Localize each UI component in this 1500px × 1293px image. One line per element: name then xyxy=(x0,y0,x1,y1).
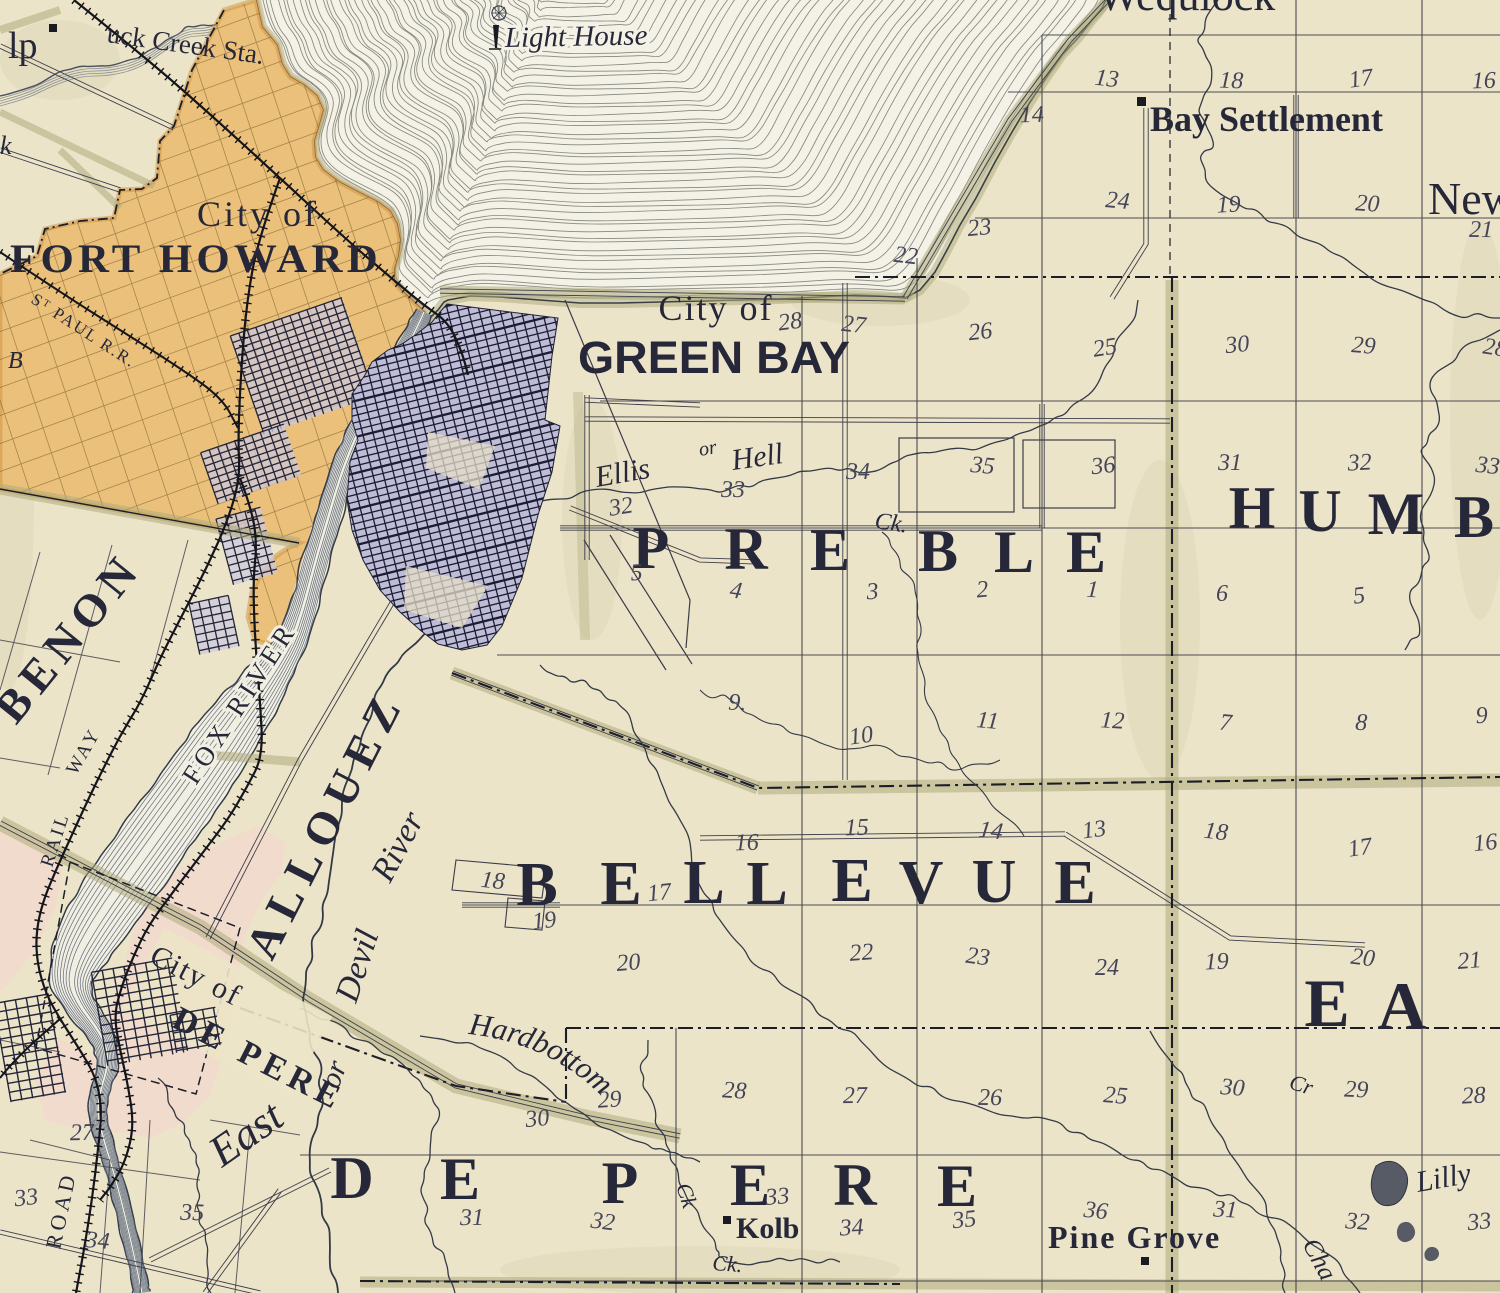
svg-text:36: 36 xyxy=(1081,1197,1109,1226)
svg-text:21: 21 xyxy=(1469,217,1493,243)
svg-text:Light House: Light House xyxy=(504,20,648,55)
svg-text:lp: lp xyxy=(8,25,38,67)
svg-text:E: E xyxy=(1066,519,1106,585)
svg-text:Ck.: Ck. xyxy=(712,1250,744,1277)
svg-text:29: 29 xyxy=(1351,332,1377,360)
svg-text:27: 27 xyxy=(843,1083,868,1109)
svg-text:1: 1 xyxy=(1086,577,1100,604)
svg-text:3: 3 xyxy=(865,579,880,606)
svg-text:17: 17 xyxy=(646,879,674,908)
svg-text:Pine Grove: Pine Grove xyxy=(1048,1219,1221,1255)
svg-text:29: 29 xyxy=(1344,1076,1369,1103)
svg-text:36: 36 xyxy=(1089,452,1116,480)
svg-text:18: 18 xyxy=(1219,68,1244,95)
svg-text:City of: City of xyxy=(197,194,319,234)
svg-text:H: H xyxy=(1229,475,1276,541)
svg-text:B: B xyxy=(918,518,958,584)
svg-text:27: 27 xyxy=(840,311,867,339)
svg-text:19: 19 xyxy=(1204,949,1229,976)
svg-text:24: 24 xyxy=(1105,187,1131,215)
svg-text:26: 26 xyxy=(967,318,994,346)
svg-text:14: 14 xyxy=(977,817,1004,846)
svg-text:34: 34 xyxy=(838,1214,864,1241)
svg-text:22: 22 xyxy=(849,939,875,967)
svg-text:9: 9 xyxy=(1475,703,1488,730)
svg-text:33: 33 xyxy=(1465,1208,1493,1236)
svg-text:k: k xyxy=(0,131,12,160)
svg-text:23: 23 xyxy=(964,943,991,972)
svg-text:25: 25 xyxy=(1103,1082,1129,1110)
svg-text:L: L xyxy=(683,849,724,917)
svg-text:30: 30 xyxy=(1219,1074,1246,1102)
svg-text:33: 33 xyxy=(720,477,745,503)
svg-text:17: 17 xyxy=(1347,64,1376,93)
svg-text:20: 20 xyxy=(615,949,641,977)
svg-text:21: 21 xyxy=(1456,947,1482,975)
svg-text:29: 29 xyxy=(597,1086,623,1113)
svg-text:35: 35 xyxy=(969,452,996,480)
svg-text:33: 33 xyxy=(12,1184,40,1213)
svg-text:33: 33 xyxy=(1473,452,1500,480)
svg-text:5: 5 xyxy=(630,560,644,587)
svg-text:32: 32 xyxy=(1346,449,1372,476)
svg-text:17: 17 xyxy=(1346,833,1375,862)
svg-text:6: 6 xyxy=(1216,581,1228,607)
svg-text:14: 14 xyxy=(1020,102,1044,128)
svg-text:20: 20 xyxy=(1355,190,1381,217)
svg-text:E: E xyxy=(831,847,872,915)
svg-text:U: U xyxy=(1298,478,1341,544)
svg-text:35: 35 xyxy=(950,1206,978,1235)
svg-text:GREEN BAY: GREEN BAY xyxy=(578,332,850,383)
svg-text:24: 24 xyxy=(1095,955,1119,981)
svg-text:13: 13 xyxy=(1081,816,1108,845)
svg-text:22: 22 xyxy=(892,242,919,271)
svg-text:B: B xyxy=(1454,484,1494,550)
svg-text:FORT HOWARD: FORT HOWARD xyxy=(10,236,382,281)
svg-text:Bay Settlement: Bay Settlement xyxy=(1150,99,1383,139)
svg-text:16: 16 xyxy=(1472,829,1498,857)
svg-text:31: 31 xyxy=(1212,1196,1238,1223)
svg-text:16: 16 xyxy=(1471,68,1496,95)
svg-text:31: 31 xyxy=(459,1205,484,1231)
svg-text:8: 8 xyxy=(1355,710,1368,736)
svg-text:31: 31 xyxy=(1217,450,1242,476)
svg-text:10: 10 xyxy=(847,722,874,751)
svg-text:12: 12 xyxy=(1100,707,1126,734)
svg-text:A: A xyxy=(1377,968,1426,1044)
svg-text:32: 32 xyxy=(1344,1208,1371,1236)
svg-text:P: P xyxy=(602,1150,639,1216)
svg-text:City of: City of xyxy=(658,288,773,328)
svg-text:B: B xyxy=(8,348,23,374)
svg-text:34: 34 xyxy=(84,1227,111,1255)
svg-text:D: D xyxy=(330,1145,373,1211)
svg-text:M: M xyxy=(1368,481,1425,547)
svg-text:L: L xyxy=(746,850,787,918)
svg-text:R: R xyxy=(833,1152,877,1218)
svg-text:18: 18 xyxy=(479,867,506,895)
svg-text:19: 19 xyxy=(531,907,558,935)
svg-text:32: 32 xyxy=(606,492,635,522)
svg-text:13: 13 xyxy=(1093,65,1120,93)
svg-text:11: 11 xyxy=(975,707,999,735)
svg-text:15: 15 xyxy=(844,815,869,842)
svg-text:35: 35 xyxy=(179,1200,205,1227)
svg-text:Wequiock: Wequiock xyxy=(1098,0,1275,20)
svg-text:E: E xyxy=(1304,965,1349,1041)
svg-text:E: E xyxy=(440,1146,480,1212)
svg-text:R: R xyxy=(724,516,768,582)
svg-text:33: 33 xyxy=(763,1183,790,1211)
svg-text:18: 18 xyxy=(1202,818,1229,847)
svg-text:28: 28 xyxy=(1461,1082,1486,1109)
svg-text:E: E xyxy=(1054,849,1095,917)
svg-text:27: 27 xyxy=(70,1120,95,1146)
svg-text:V: V xyxy=(899,849,944,917)
svg-text:20: 20 xyxy=(1349,944,1376,973)
svg-text:25: 25 xyxy=(1091,333,1119,362)
svg-text:28: 28 xyxy=(722,1077,748,1104)
svg-text:28: 28 xyxy=(777,308,804,337)
svg-text:E: E xyxy=(810,517,850,583)
svg-text:32: 32 xyxy=(588,1208,616,1237)
svg-text:16: 16 xyxy=(734,830,759,857)
svg-text:E: E xyxy=(600,850,641,918)
svg-text:30: 30 xyxy=(1223,331,1250,359)
svg-text:U: U xyxy=(972,848,1017,916)
svg-text:30: 30 xyxy=(523,1105,550,1133)
svg-text:L: L xyxy=(994,519,1034,585)
svg-text:Ck.: Ck. xyxy=(873,508,909,538)
svg-text:23: 23 xyxy=(966,214,992,242)
svg-text:Kolb: Kolb xyxy=(736,1212,799,1245)
svg-text:9.: 9. xyxy=(728,690,747,717)
svg-text:19: 19 xyxy=(1216,191,1241,218)
svg-text:26: 26 xyxy=(978,1085,1002,1111)
svg-text:34: 34 xyxy=(845,459,870,485)
svg-text:28: 28 xyxy=(1481,333,1500,362)
svg-text:2: 2 xyxy=(975,577,989,604)
